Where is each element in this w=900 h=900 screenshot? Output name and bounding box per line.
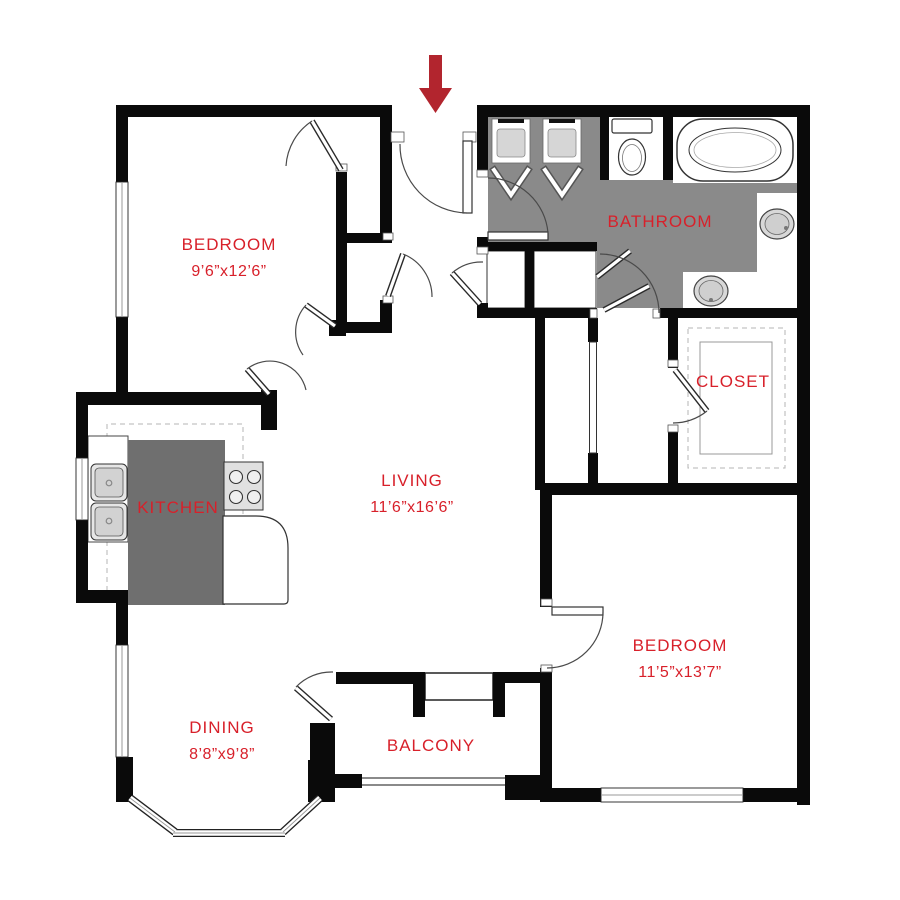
four-burner-stove xyxy=(224,462,263,510)
laundry-nook-door xyxy=(452,247,488,304)
bedroom1-dims: 9’6”x12’6” xyxy=(191,263,266,280)
closet-label: CLOSET xyxy=(696,372,770,391)
washer-dryer-closets xyxy=(487,251,596,308)
dining-dims: 8’8”x9’8” xyxy=(189,746,255,763)
living-label: LIVING xyxy=(381,471,443,490)
bedroom2-label: BEDROOM xyxy=(633,636,728,655)
entry-arrow-icon xyxy=(419,55,452,113)
kitchen-counter xyxy=(223,516,288,604)
floor-plan-page: BEDROOM 9’6”x12’6” BATHROOM CLOSET LIVIN… xyxy=(0,0,900,900)
round-basin-right xyxy=(760,209,794,239)
bedroom2-door xyxy=(541,599,603,672)
vanity-sink-left xyxy=(492,119,530,163)
bedroom2-dims: 11’5”x13’7” xyxy=(638,664,721,681)
vanity-sink-right xyxy=(543,119,581,163)
kitchen-window xyxy=(76,458,88,520)
balcony-railing xyxy=(362,778,508,785)
balcony-storage xyxy=(425,673,493,700)
bedroom1-label: BEDROOM xyxy=(182,235,277,254)
bedroom1-window xyxy=(116,182,128,317)
hall-closet-door xyxy=(383,233,432,303)
dining-window xyxy=(116,645,128,757)
round-basin-lower xyxy=(694,276,728,306)
corridor-thin-partition xyxy=(590,342,597,453)
bedroom1-closet-door xyxy=(286,121,347,171)
floor-plan-svg: BEDROOM 9’6”x12’6” BATHROOM CLOSET LIVIN… xyxy=(0,0,900,900)
front-door xyxy=(391,132,476,213)
bathroom-label: BATHROOM xyxy=(608,212,713,231)
balcony-door xyxy=(296,672,333,719)
balcony-label: BALCONY xyxy=(387,736,475,755)
walk-in-closet-shelving xyxy=(688,328,785,468)
kitchen-island xyxy=(128,440,225,605)
bay-window xyxy=(130,798,320,833)
bathtub xyxy=(677,119,793,181)
bedroom2-window xyxy=(601,788,743,802)
kitchen-label: KITCHEN xyxy=(137,498,219,517)
living-dims: 11’6”x16’6” xyxy=(370,499,453,516)
dining-label: DINING xyxy=(189,718,255,737)
balcony-parts xyxy=(362,673,508,785)
kitchen-passage-door xyxy=(247,361,306,394)
